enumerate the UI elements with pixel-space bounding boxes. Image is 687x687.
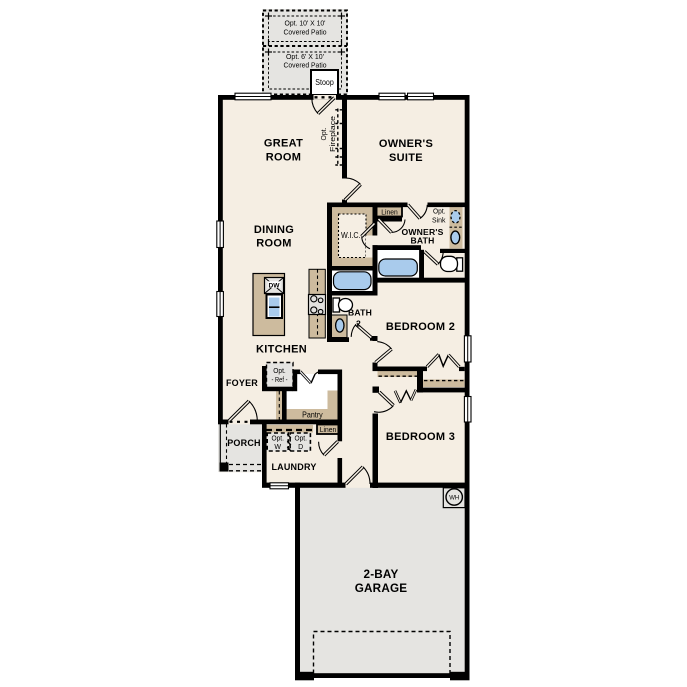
svg-text:2-BAY: 2-BAY — [364, 568, 399, 581]
svg-text:Covered Patio: Covered Patio — [284, 61, 327, 70]
svg-text:KITCHEN: KITCHEN — [256, 344, 307, 356]
svg-text:WH: WH — [449, 494, 459, 501]
svg-text:Opt.: Opt. — [271, 436, 284, 443]
svg-text:Covered Patio: Covered Patio — [284, 28, 327, 37]
svg-text:OWNER'S: OWNER'S — [379, 138, 433, 150]
svg-text:Linen: Linen — [320, 427, 337, 434]
svg-text:LAUNDRY: LAUNDRY — [271, 462, 316, 472]
svg-text:Linen: Linen — [381, 209, 398, 216]
svg-text:SUITE: SUITE — [389, 152, 423, 164]
svg-text:W: W — [274, 444, 281, 451]
svg-text:PORCH: PORCH — [227, 438, 261, 448]
svg-text:DINING: DINING — [254, 224, 294, 236]
svg-text:Sink: Sink — [432, 218, 446, 225]
svg-text:Opt.: Opt. — [294, 436, 307, 443]
svg-text:DW: DW — [269, 282, 281, 289]
svg-text:GREAT: GREAT — [264, 138, 303, 150]
svg-text:ROOM: ROOM — [256, 238, 291, 250]
svg-text:D: D — [298, 444, 303, 451]
svg-text:Opt. 10' X 10': Opt. 10' X 10' — [285, 19, 327, 28]
svg-text:Opt.: Opt. — [273, 368, 286, 375]
svg-text:BATH: BATH — [410, 236, 434, 246]
svg-text:Opt.: Opt. — [433, 209, 446, 216]
svg-text:W.I.C.: W.I.C. — [341, 231, 361, 240]
svg-text:2: 2 — [356, 319, 361, 329]
svg-text:ROOM: ROOM — [266, 152, 301, 164]
svg-text:Stoop: Stoop — [315, 78, 334, 87]
svg-text:BEDROOM 3: BEDROOM 3 — [386, 431, 455, 443]
svg-text:GARAGE: GARAGE — [355, 582, 408, 595]
svg-text:Pantry: Pantry — [302, 411, 323, 420]
svg-text:- Ref -: - Ref - — [272, 377, 289, 384]
svg-text:FOYER: FOYER — [226, 378, 258, 388]
svg-text:BEDROOM 2: BEDROOM 2 — [386, 321, 455, 333]
